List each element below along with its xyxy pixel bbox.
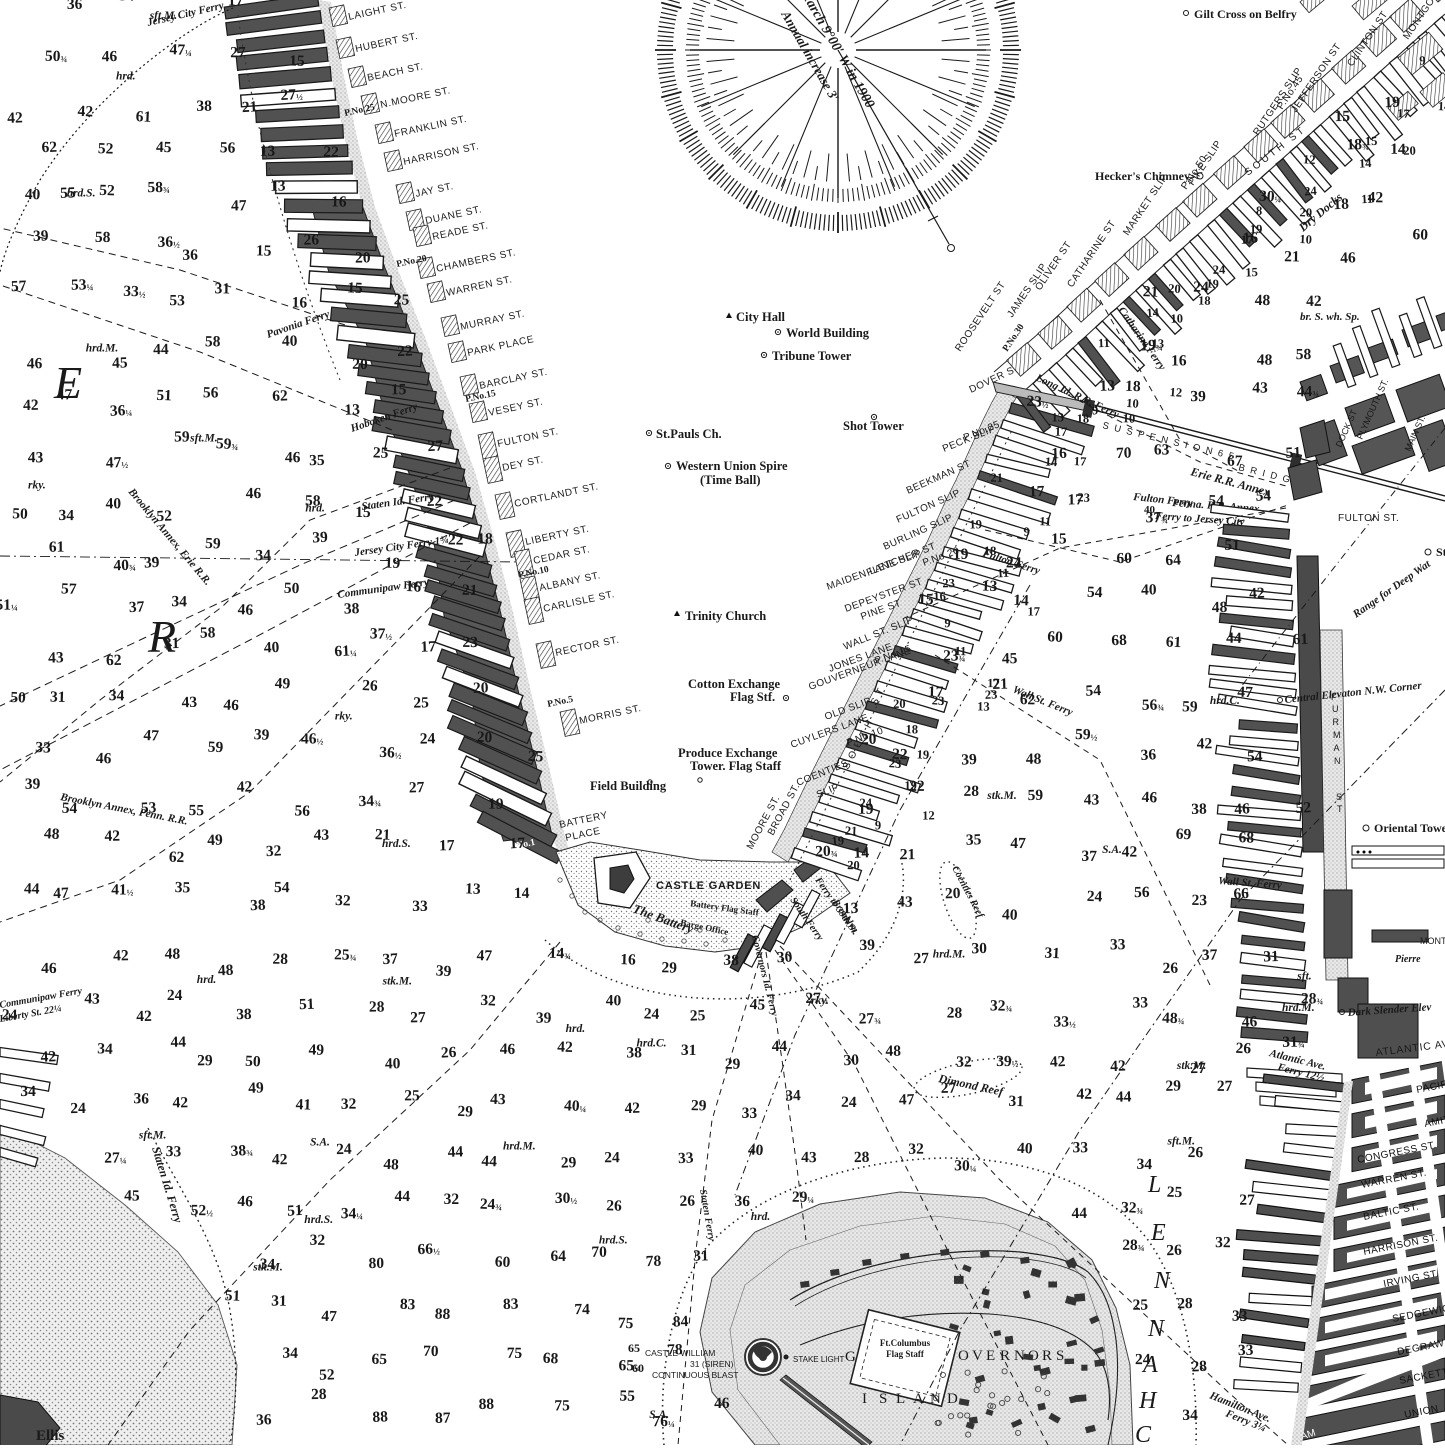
- svg-text:49: 49: [308, 1042, 324, 1059]
- svg-text:43: 43: [84, 990, 100, 1008]
- svg-text:18: 18: [1125, 378, 1141, 396]
- svg-text:47: 47: [476, 947, 492, 964]
- svg-text:33: 33: [1238, 1342, 1254, 1359]
- svg-text:26: 26: [1163, 960, 1179, 977]
- svg-text:S.A.: S.A.: [1102, 844, 1122, 856]
- svg-text:34: 34: [171, 593, 187, 610]
- svg-text:34: 34: [109, 687, 125, 704]
- svg-text:67: 67: [1227, 453, 1243, 470]
- svg-text:18: 18: [984, 544, 997, 558]
- svg-text:S.A.: S.A.: [310, 1136, 330, 1148]
- svg-text:29: 29: [1165, 1077, 1181, 1094]
- svg-text:25: 25: [373, 444, 389, 461]
- svg-text:54: 54: [274, 879, 290, 896]
- svg-text:28: 28: [369, 998, 385, 1015]
- svg-text:sft.M.: sft.M.: [1167, 1136, 1195, 1148]
- svg-text:13: 13: [843, 900, 859, 917]
- svg-text:27: 27: [427, 437, 443, 455]
- svg-text:62: 62: [106, 652, 122, 669]
- svg-text:Western Union Spire: Western Union Spire: [676, 459, 788, 473]
- svg-text:hrd.C.: hrd.C.: [1210, 695, 1240, 707]
- svg-text:29: 29: [691, 1097, 707, 1114]
- svg-text:61: 61: [1292, 631, 1308, 649]
- svg-text:46: 46: [1234, 800, 1250, 818]
- svg-text:hrd.S.: hrd.S.: [304, 1214, 333, 1226]
- svg-text:21: 21: [1142, 283, 1158, 301]
- svg-text:54: 54: [119, 0, 135, 5]
- svg-text:83: 83: [400, 1296, 416, 1314]
- svg-text:D: D: [947, 1391, 958, 1407]
- svg-text:48: 48: [1257, 352, 1273, 369]
- svg-text:24: 24: [336, 1141, 352, 1158]
- svg-text:E: E: [986, 1348, 995, 1364]
- svg-text:51: 51: [1285, 444, 1301, 462]
- svg-text:9: 9: [944, 616, 951, 630]
- svg-text:61: 61: [49, 539, 65, 556]
- svg-text:42: 42: [1050, 1053, 1067, 1071]
- svg-text:46: 46: [237, 601, 253, 619]
- svg-text:stk.M.: stk.M.: [1176, 1060, 1206, 1072]
- svg-text:56: 56: [203, 384, 219, 401]
- svg-text:20: 20: [945, 885, 961, 903]
- svg-text:Pierre: Pierre: [1395, 954, 1421, 965]
- svg-text:53: 53: [141, 799, 157, 816]
- svg-text:16: 16: [331, 193, 347, 210]
- svg-text:20: 20: [473, 679, 489, 696]
- svg-text:61: 61: [1165, 634, 1181, 652]
- svg-text:48: 48: [383, 1156, 399, 1174]
- svg-text:39: 39: [253, 726, 270, 744]
- svg-text:54: 54: [1208, 492, 1224, 510]
- svg-text:33: 33: [35, 739, 51, 757]
- svg-text:68: 68: [1238, 829, 1254, 846]
- svg-text:34: 34: [255, 547, 271, 564]
- svg-text:43: 43: [1084, 791, 1100, 808]
- svg-text:31: 31: [681, 1042, 697, 1059]
- svg-text:38: 38: [344, 600, 360, 617]
- svg-text:44: 44: [772, 1038, 788, 1055]
- svg-text:hrd.S.: hrd.S.: [67, 188, 96, 200]
- svg-text:43: 43: [897, 894, 913, 911]
- svg-text:31: 31: [693, 1247, 709, 1264]
- svg-text:Flag Stf.: Flag Stf.: [730, 690, 775, 704]
- svg-text:33: 33: [412, 898, 428, 915]
- svg-text:32: 32: [1215, 1234, 1231, 1251]
- svg-text:CASTLE GARDEN: CASTLE GARDEN: [656, 880, 761, 892]
- svg-text:65: 65: [371, 1351, 387, 1368]
- svg-text:19: 19: [969, 517, 982, 531]
- svg-text:33: 33: [742, 1105, 758, 1122]
- svg-text:stk.M.: stk.M.: [986, 790, 1016, 802]
- svg-text:38: 38: [1191, 801, 1207, 818]
- svg-text:15: 15: [391, 381, 407, 398]
- svg-text:40: 40: [106, 495, 122, 512]
- svg-text:32: 32: [266, 842, 283, 860]
- svg-text:66: 66: [1233, 885, 1250, 903]
- svg-text:44: 44: [481, 1153, 497, 1171]
- svg-text:40: 40: [1141, 581, 1157, 598]
- svg-text:46: 46: [246, 485, 262, 502]
- svg-text:78: 78: [646, 1253, 662, 1270]
- svg-text:16: 16: [620, 951, 636, 968]
- svg-text:42: 42: [1197, 735, 1213, 752]
- svg-text:11: 11: [1361, 192, 1374, 207]
- svg-text:M: M: [1333, 730, 1341, 740]
- svg-text:41: 41: [295, 1096, 311, 1114]
- svg-text:21: 21: [900, 846, 916, 863]
- svg-text:15: 15: [1365, 134, 1378, 148]
- svg-text:V: V: [972, 1348, 983, 1364]
- svg-text:15: 15: [289, 53, 305, 70]
- svg-text:39: 39: [25, 776, 41, 793]
- svg-text:42: 42: [237, 778, 253, 795]
- svg-text:43: 43: [1252, 379, 1268, 396]
- svg-text:61: 61: [135, 108, 151, 126]
- svg-text:25: 25: [394, 291, 410, 309]
- svg-text:rky.: rky.: [811, 995, 829, 1007]
- svg-text:46: 46: [714, 1395, 730, 1412]
- svg-text:51: 51: [299, 996, 315, 1014]
- svg-text:12: 12: [1169, 385, 1182, 400]
- svg-text:62: 62: [272, 387, 288, 405]
- svg-text:33: 33: [1132, 994, 1148, 1011]
- svg-text:10: 10: [1299, 232, 1312, 247]
- svg-text:47: 47: [143, 727, 160, 745]
- svg-text:Cotton Exchange: Cotton Exchange: [688, 677, 780, 691]
- svg-text:33: 33: [166, 1143, 182, 1160]
- svg-text:20: 20: [355, 249, 371, 266]
- svg-text:45: 45: [112, 354, 128, 372]
- svg-text:CONTINUOUS BLAST: CONTINUOUS BLAST: [652, 1370, 738, 1380]
- svg-text:FULTON ST.: FULTON ST.: [1338, 513, 1399, 524]
- svg-text:60: 60: [494, 1253, 510, 1271]
- svg-text:23: 23: [1191, 892, 1207, 909]
- svg-text:33: 33: [678, 1149, 695, 1167]
- svg-text:49: 49: [248, 1079, 264, 1097]
- svg-text:20: 20: [847, 858, 860, 872]
- svg-text:56: 56: [294, 802, 310, 819]
- svg-text:19: 19: [488, 796, 504, 813]
- svg-text:39: 39: [1190, 388, 1206, 405]
- svg-text:44: 44: [153, 341, 169, 358]
- svg-text:22: 22: [427, 493, 443, 510]
- svg-text:16: 16: [292, 294, 308, 311]
- svg-text:13: 13: [1051, 410, 1064, 424]
- svg-text:34: 34: [97, 1040, 113, 1058]
- svg-text:28: 28: [854, 1149, 870, 1166]
- svg-text:33: 33: [1072, 1139, 1088, 1156]
- svg-text:27: 27: [230, 44, 246, 61]
- svg-text:70: 70: [423, 1343, 439, 1360]
- svg-text:15: 15: [1335, 108, 1351, 125]
- svg-text:42: 42: [136, 1008, 152, 1025]
- svg-text:68: 68: [542, 1350, 558, 1368]
- svg-text:35: 35: [174, 879, 190, 896]
- svg-text:26: 26: [1235, 1040, 1252, 1058]
- svg-text:C: C: [1135, 1422, 1152, 1445]
- svg-text:30: 30: [971, 940, 987, 957]
- svg-text:STAKE LIGHT: STAKE LIGHT: [793, 1355, 845, 1364]
- svg-text:Ft.Columbus: Ft.Columbus: [880, 1338, 931, 1348]
- svg-text:34: 34: [1182, 1407, 1198, 1424]
- svg-text:19: 19: [385, 555, 401, 573]
- svg-text:34: 34: [20, 1083, 36, 1100]
- svg-text:hrd.: hrd.: [751, 1211, 771, 1223]
- svg-text:sft.M.: sft.M.: [189, 433, 217, 445]
- svg-text:36: 36: [734, 1193, 750, 1211]
- svg-text:58: 58: [95, 229, 111, 246]
- svg-text:19: 19: [1250, 222, 1263, 236]
- svg-text:20: 20: [861, 731, 877, 748]
- svg-text:36: 36: [182, 247, 198, 264]
- svg-text:42: 42: [624, 1100, 640, 1117]
- svg-text:28: 28: [947, 1005, 963, 1022]
- svg-text:13: 13: [260, 143, 276, 160]
- svg-text:28: 28: [1177, 1295, 1193, 1312]
- svg-text:33: 33: [1232, 1308, 1248, 1325]
- svg-text:13: 13: [344, 401, 360, 419]
- svg-text:17: 17: [1027, 604, 1040, 618]
- svg-text:World Building: World Building: [786, 326, 870, 340]
- svg-text:17: 17: [1029, 483, 1045, 500]
- svg-text:63: 63: [1154, 441, 1170, 458]
- svg-text:46: 46: [41, 960, 57, 977]
- svg-text:21: 21: [462, 582, 478, 600]
- svg-text:hrd.C.: hrd.C.: [637, 1038, 667, 1050]
- svg-text:48: 48: [218, 962, 235, 980]
- svg-text:stk.M.: stk.M.: [252, 1261, 282, 1273]
- svg-text:11: 11: [954, 644, 966, 658]
- svg-text:39: 39: [144, 554, 161, 572]
- svg-text:26: 26: [1166, 1242, 1182, 1260]
- svg-text:32: 32: [341, 1096, 357, 1113]
- svg-text:24: 24: [70, 1100, 86, 1117]
- svg-text:32: 32: [444, 1191, 460, 1208]
- svg-text:51: 51: [1224, 537, 1240, 554]
- svg-text:19: 19: [1206, 276, 1219, 291]
- svg-text:74: 74: [574, 1301, 590, 1318]
- svg-text:54: 54: [1087, 584, 1103, 601]
- svg-text:19: 19: [904, 778, 917, 792]
- svg-text:70: 70: [1116, 444, 1132, 462]
- svg-text:12: 12: [1303, 152, 1316, 167]
- svg-text:60: 60: [1116, 550, 1132, 568]
- svg-text:47: 47: [57, 386, 73, 403]
- svg-text:22: 22: [448, 531, 464, 548]
- svg-text:47: 47: [899, 1091, 915, 1108]
- svg-text:21: 21: [990, 471, 1003, 485]
- svg-text:59: 59: [1182, 698, 1198, 715]
- svg-text:sft.M.: sft.M.: [149, 10, 177, 22]
- svg-text:10: 10: [1123, 411, 1136, 425]
- svg-text:28: 28: [963, 783, 979, 800]
- svg-text:hrd.: hrd.: [566, 1023, 586, 1035]
- svg-text:MONT: MONT: [1420, 936, 1445, 946]
- svg-text:28: 28: [1191, 1358, 1207, 1376]
- svg-text:42: 42: [557, 1039, 573, 1056]
- svg-text:27: 27: [1239, 1192, 1255, 1209]
- svg-text:hrd.S.: hrd.S.: [382, 838, 411, 850]
- svg-text:31: 31: [50, 689, 66, 706]
- svg-text:37: 37: [1202, 947, 1218, 964]
- svg-text:sft.: sft.: [1296, 970, 1311, 982]
- svg-text:64: 64: [550, 1248, 566, 1265]
- svg-text:10: 10: [1170, 311, 1183, 325]
- svg-text:34: 34: [1136, 1156, 1152, 1173]
- svg-text:28: 28: [272, 951, 288, 968]
- svg-text:51: 51: [225, 1287, 241, 1305]
- svg-text:29: 29: [561, 1154, 577, 1172]
- svg-text:46: 46: [285, 449, 301, 466]
- svg-text:Ellis: Ellis: [36, 1428, 65, 1444]
- svg-text:40: 40: [263, 639, 279, 657]
- svg-text:S: S: [1056, 1348, 1064, 1364]
- svg-text:39: 39: [536, 1010, 552, 1027]
- svg-text:14: 14: [1359, 156, 1373, 171]
- svg-text:47: 47: [1010, 835, 1026, 852]
- svg-text:(Time Ball): (Time Ball): [700, 473, 761, 487]
- svg-text:25: 25: [1133, 1297, 1149, 1314]
- svg-text:S.A.: S.A.: [649, 1409, 669, 1421]
- svg-text:51: 51: [287, 1202, 303, 1220]
- svg-text:42: 42: [113, 947, 129, 964]
- svg-text:43: 43: [801, 1149, 817, 1166]
- svg-text:13: 13: [465, 880, 481, 898]
- svg-text:8: 8: [1256, 204, 1263, 218]
- svg-text:35: 35: [309, 452, 325, 469]
- svg-text:27: 27: [941, 1080, 957, 1097]
- svg-text:hrd.M.: hrd.M.: [503, 1141, 536, 1153]
- svg-text:42: 42: [272, 1151, 288, 1168]
- svg-text:G: G: [845, 1349, 856, 1365]
- svg-text:24: 24: [604, 1149, 620, 1166]
- svg-text:hrd.M.: hrd.M.: [933, 949, 966, 961]
- svg-text:26: 26: [440, 1044, 457, 1062]
- svg-text:55: 55: [619, 1388, 635, 1405]
- svg-text:City Hall: City Hall: [736, 310, 785, 324]
- svg-text:A: A: [1334, 743, 1340, 753]
- svg-text:37: 37: [382, 950, 399, 968]
- svg-text:64: 64: [1165, 551, 1182, 569]
- svg-text:53: 53: [169, 292, 185, 309]
- svg-text:21: 21: [1284, 248, 1300, 265]
- svg-text:N: N: [1153, 1268, 1172, 1294]
- svg-text:43: 43: [490, 1091, 506, 1108]
- svg-text:58: 58: [205, 333, 221, 350]
- svg-text:42: 42: [1306, 293, 1322, 310]
- svg-text:13: 13: [981, 578, 997, 596]
- svg-text:20: 20: [1299, 205, 1312, 220]
- svg-text:49: 49: [207, 832, 223, 849]
- svg-text:42: 42: [6, 0, 22, 4]
- svg-text:46: 46: [1141, 789, 1157, 807]
- svg-text:12: 12: [922, 808, 935, 822]
- svg-text:24: 24: [859, 796, 873, 810]
- svg-text:36: 36: [1140, 746, 1157, 764]
- svg-text:Shot Tower: Shot Tower: [843, 419, 904, 433]
- svg-text:13: 13: [270, 178, 286, 195]
- svg-text:hrd.: hrd.: [197, 974, 217, 986]
- svg-text:42: 42: [1249, 585, 1266, 603]
- svg-text:52: 52: [1295, 799, 1312, 817]
- svg-text:25: 25: [413, 694, 429, 711]
- svg-text:50: 50: [245, 1053, 261, 1071]
- svg-text:47: 47: [321, 1308, 337, 1325]
- svg-text:43: 43: [181, 694, 197, 711]
- svg-text:27: 27: [410, 1009, 426, 1026]
- svg-text:15: 15: [256, 242, 272, 259]
- svg-text:62: 62: [1020, 691, 1036, 708]
- svg-text:32: 32: [310, 1232, 326, 1249]
- svg-text:46: 46: [223, 697, 239, 715]
- svg-text:17: 17: [439, 837, 455, 854]
- svg-text:45: 45: [749, 996, 765, 1014]
- svg-text:13: 13: [1099, 377, 1115, 394]
- svg-text:47: 47: [53, 885, 69, 902]
- svg-text:58: 58: [1296, 346, 1312, 363]
- svg-text:23: 23: [942, 576, 955, 590]
- svg-text:29: 29: [197, 1052, 213, 1069]
- svg-text:46: 46: [1340, 249, 1356, 267]
- svg-text:32: 32: [956, 1054, 972, 1071]
- svg-text:17: 17: [1055, 425, 1068, 439]
- svg-text:60: 60: [1047, 628, 1064, 646]
- svg-text:38: 38: [723, 952, 739, 969]
- svg-text:62: 62: [41, 139, 57, 157]
- svg-text:9: 9: [1023, 524, 1030, 538]
- svg-text:A: A: [913, 1391, 924, 1407]
- svg-text:59: 59: [207, 739, 223, 757]
- svg-text:29: 29: [661, 959, 677, 976]
- svg-text:St.Pauls Ch.: St.Pauls Ch.: [656, 427, 722, 441]
- svg-text:44: 44: [1116, 1088, 1132, 1105]
- svg-text:24: 24: [420, 730, 436, 747]
- svg-text:43: 43: [48, 649, 64, 666]
- svg-text:46: 46: [102, 48, 118, 65]
- svg-text:Oriental Tower: Oriental Tower: [1374, 821, 1445, 835]
- svg-text:75: 75: [554, 1397, 570, 1414]
- svg-text:24: 24: [1, 1006, 17, 1023]
- svg-text:30: 30: [843, 1052, 860, 1070]
- svg-text:57: 57: [61, 580, 77, 598]
- svg-text:52: 52: [156, 508, 172, 526]
- svg-text:24: 24: [1213, 263, 1227, 277]
- svg-text:83: 83: [503, 1295, 519, 1312]
- svg-text:14: 14: [1146, 305, 1160, 320]
- svg-text:88: 88: [372, 1408, 389, 1426]
- svg-text:16: 16: [405, 578, 421, 596]
- svg-text:40: 40: [1002, 906, 1018, 924]
- svg-text:L: L: [896, 1391, 905, 1407]
- svg-text:46: 46: [500, 1041, 516, 1058]
- svg-text:29: 29: [457, 1103, 473, 1121]
- svg-text:43: 43: [314, 827, 330, 844]
- svg-text:88: 88: [435, 1306, 451, 1324]
- svg-text:34: 34: [282, 1345, 298, 1362]
- svg-text:19: 19: [831, 833, 844, 848]
- svg-text:42: 42: [7, 109, 23, 126]
- svg-text:hrd.: hrd.: [116, 71, 136, 83]
- svg-text:40: 40: [385, 1055, 401, 1072]
- svg-text:56: 56: [1134, 884, 1150, 901]
- svg-text:23: 23: [1077, 490, 1090, 505]
- svg-text:27: 27: [913, 950, 929, 967]
- svg-text:Hecker's Chimney: Hecker's Chimney: [1095, 169, 1190, 183]
- svg-text:24: 24: [1304, 184, 1318, 199]
- svg-text:11: 11: [1039, 514, 1052, 529]
- svg-text:36: 36: [256, 1411, 272, 1429]
- svg-text:20: 20: [1168, 281, 1181, 296]
